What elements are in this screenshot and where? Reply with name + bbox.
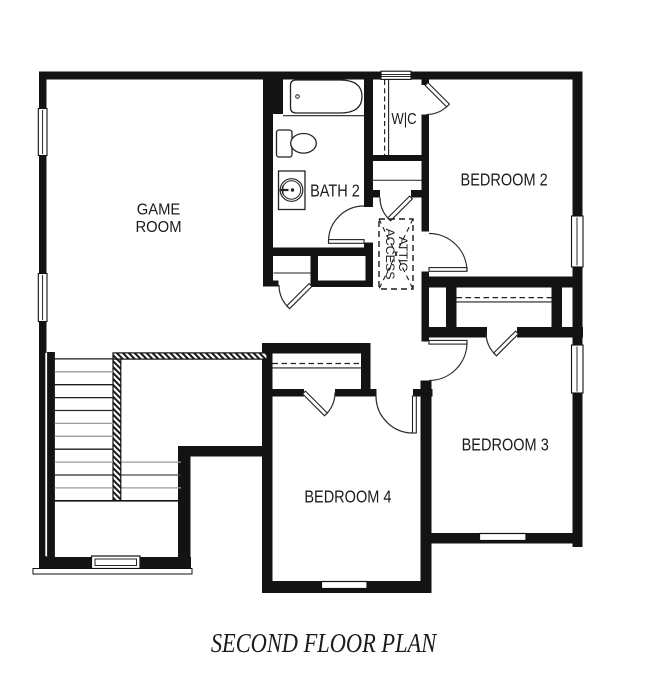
svg-text:BEDROOM 3: BEDROOM 3 — [462, 435, 549, 455]
svg-text:ACCESS: ACCESS — [383, 229, 397, 280]
svg-text:GAME: GAME — [137, 201, 181, 218]
svg-text:ATTIC: ATTIC — [396, 237, 410, 272]
svg-text:SECOND FLOOR PLAN: SECOND FLOOR PLAN — [211, 629, 437, 659]
svg-text:ROOM: ROOM — [135, 219, 181, 236]
svg-text:BEDROOM 4: BEDROOM 4 — [304, 487, 391, 507]
svg-text:BEDROOM 2: BEDROOM 2 — [461, 170, 548, 190]
svg-text:W|C: W|C — [391, 111, 416, 128]
svg-text:BATH 2: BATH 2 — [310, 181, 360, 201]
